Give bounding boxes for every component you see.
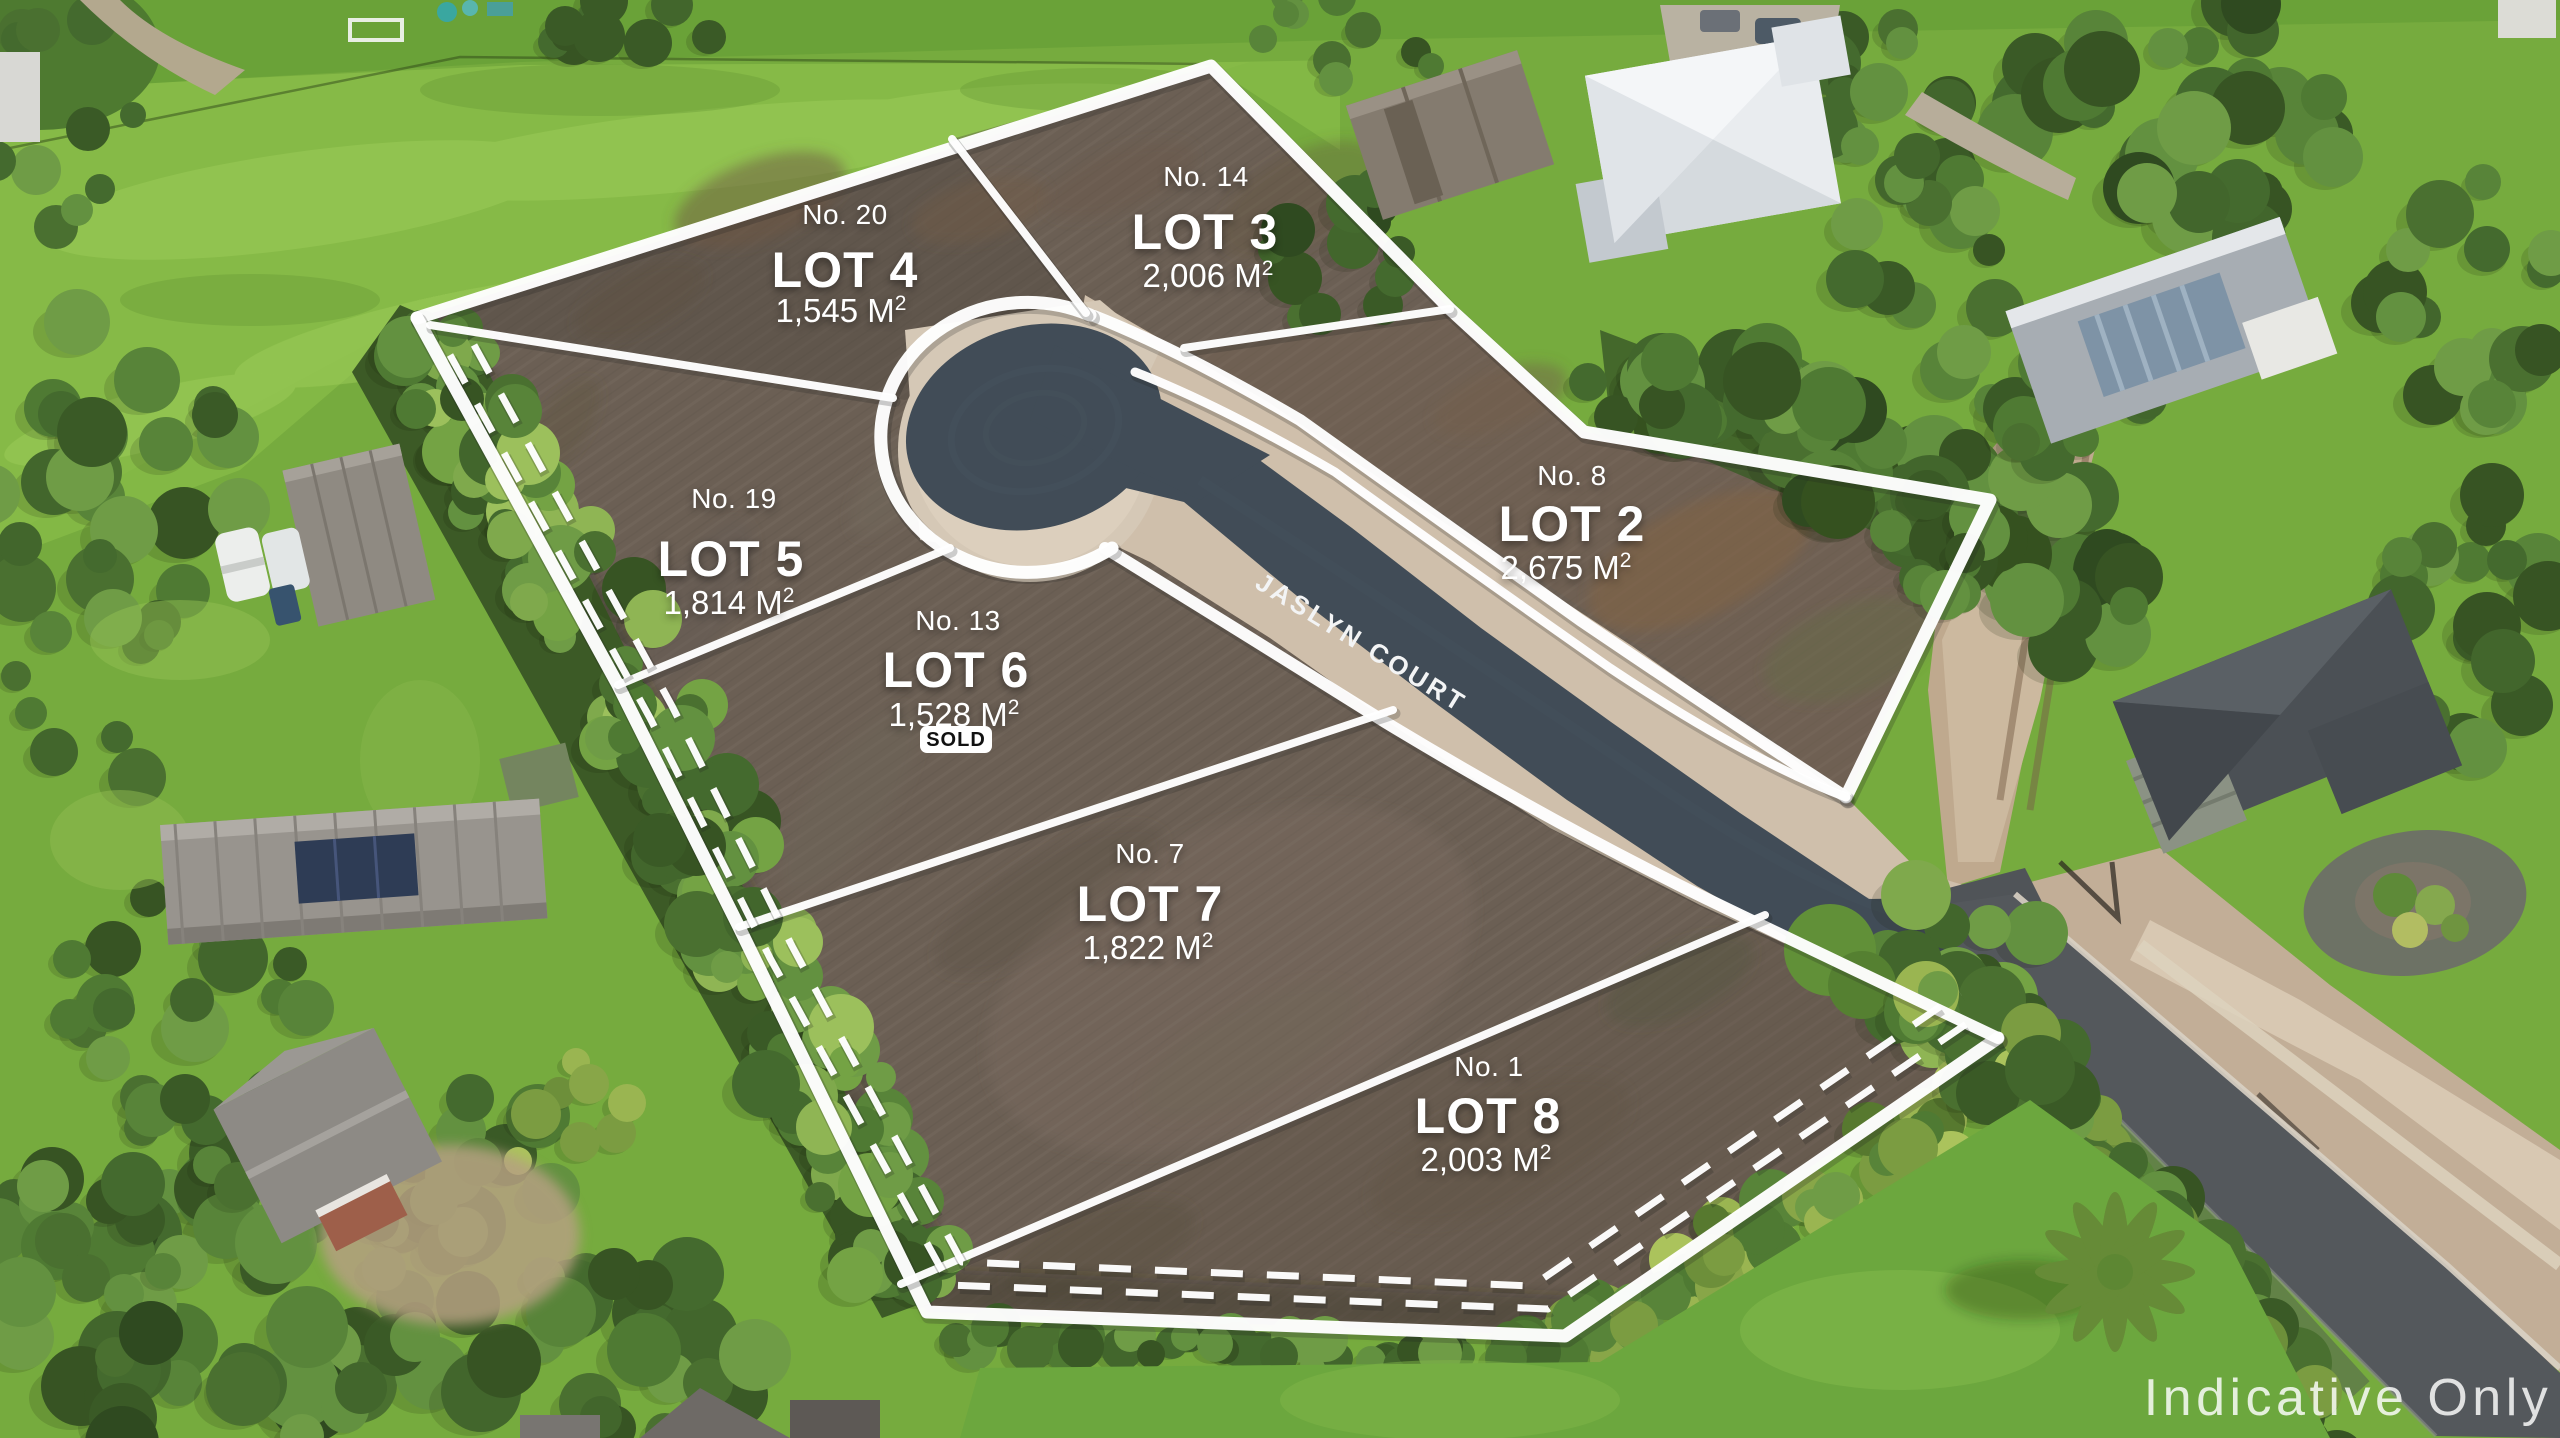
svg-text:No. 19: No. 19 <box>691 483 777 514</box>
svg-text:LOT 5: LOT 5 <box>658 531 805 587</box>
svg-text:No. 7: No. 7 <box>1115 838 1184 869</box>
svg-text:No. 20: No. 20 <box>802 199 888 230</box>
svg-text:LOT 7: LOT 7 <box>1077 876 1224 932</box>
svg-text:2,675 M2: 2,675 M2 <box>1501 549 1632 586</box>
svg-text:1,822 M2: 1,822 M2 <box>1083 929 1214 966</box>
svg-text:LOT 2: LOT 2 <box>1499 496 1646 552</box>
svg-text:Indicative Only: Indicative Only <box>2144 1369 2553 1427</box>
svg-text:SOLD: SOLD <box>926 729 986 751</box>
svg-text:LOT 4: LOT 4 <box>772 242 919 298</box>
svg-text:LOT 6: LOT 6 <box>883 642 1030 698</box>
svg-text:No. 8: No. 8 <box>1537 460 1606 491</box>
svg-text:2,006 M2: 2,006 M2 <box>1143 257 1274 294</box>
svg-text:LOT 3: LOT 3 <box>1132 204 1279 260</box>
svg-text:1,545 M2: 1,545 M2 <box>776 292 907 329</box>
svg-text:No. 13: No. 13 <box>915 605 1001 636</box>
svg-text:2,003 M2: 2,003 M2 <box>1421 1141 1552 1178</box>
svg-text:No. 14: No. 14 <box>1163 161 1249 192</box>
svg-text:1,814 M2: 1,814 M2 <box>664 584 795 621</box>
svg-text:LOT 8: LOT 8 <box>1415 1088 1562 1144</box>
svg-text:No. 1: No. 1 <box>1454 1051 1523 1082</box>
